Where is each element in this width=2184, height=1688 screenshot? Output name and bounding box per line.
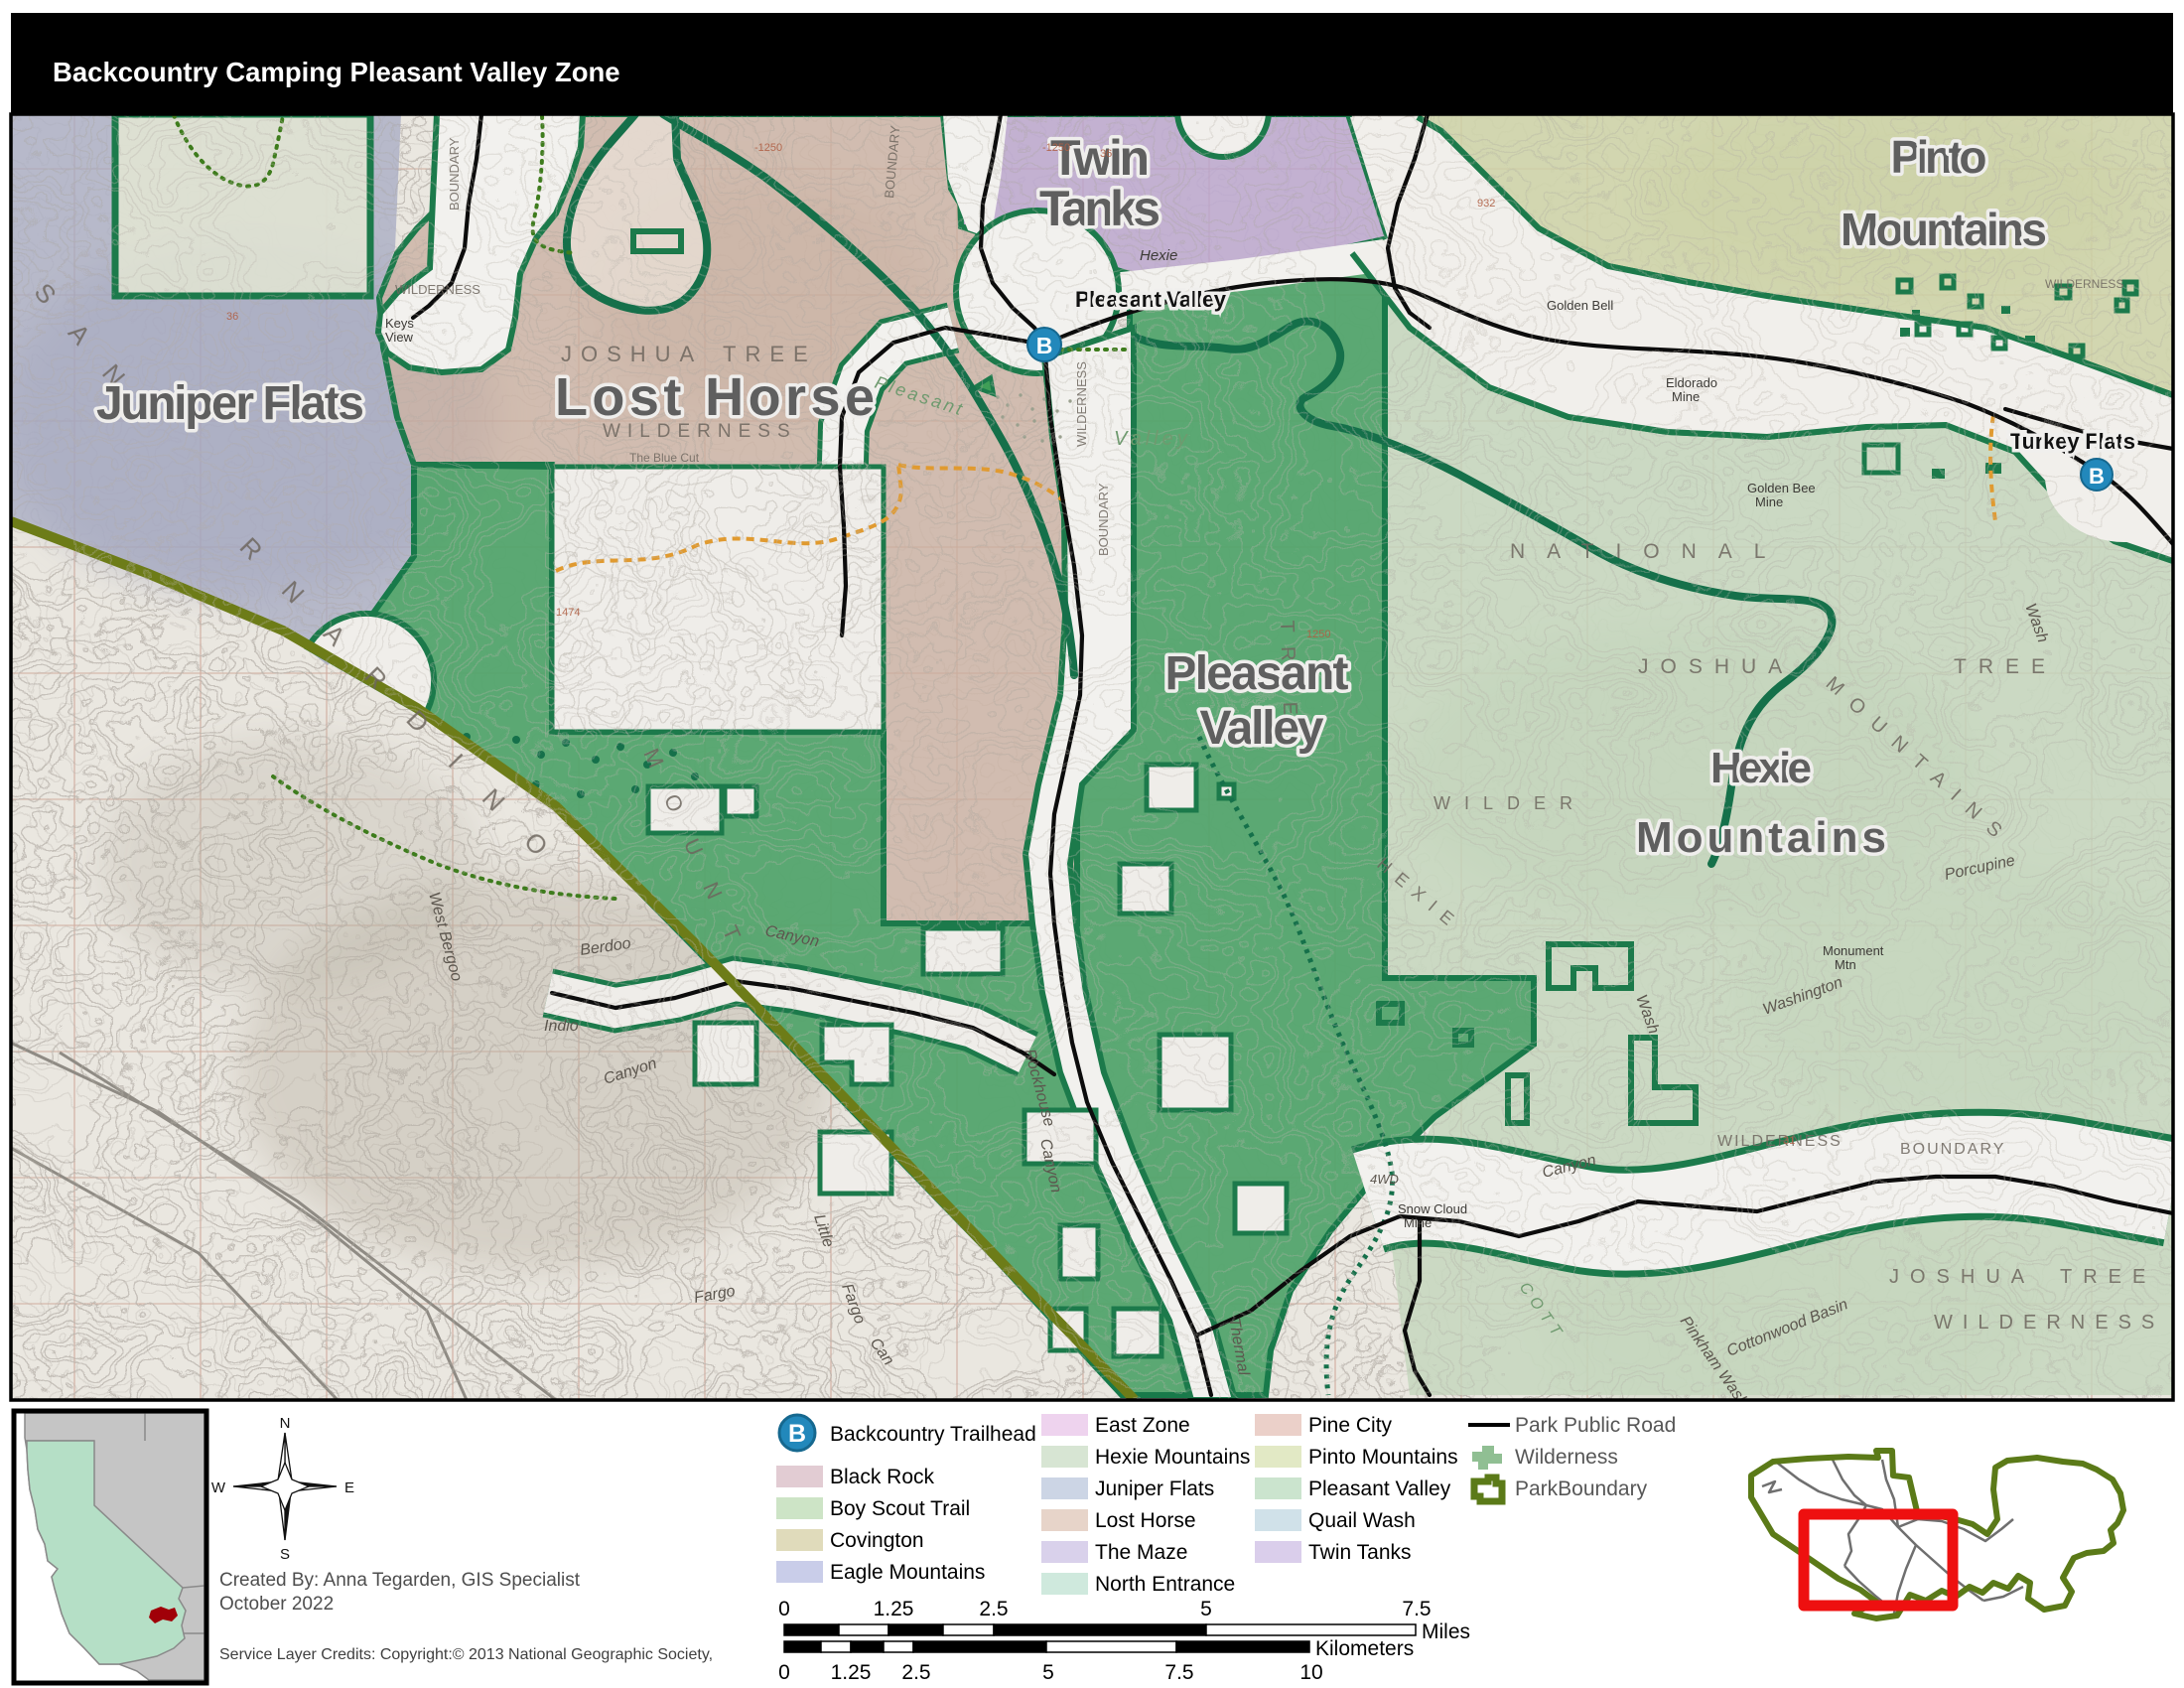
- svg-text:S: S: [280, 1546, 290, 1563]
- svg-text:October 2022: October 2022: [219, 1594, 334, 1615]
- svg-text:B: B: [1036, 333, 1053, 358]
- svg-text:Monument: Monument: [1823, 943, 1884, 958]
- svg-text:Created By: Anna Tegarden, GIS: Created By: Anna Tegarden, GIS Specialis…: [219, 1570, 581, 1591]
- svg-text:Backcountry Trailhead: Backcountry Trailhead: [830, 1423, 1036, 1446]
- svg-text:31: 31: [1783, 1135, 1795, 1147]
- svg-text:1250: 1250: [1306, 629, 1330, 640]
- svg-text:Hexie Mountains: Hexie Mountains: [1095, 1446, 1250, 1469]
- svg-text:5: 5: [1042, 1661, 1054, 1684]
- svg-text:WILDER: WILDER: [1433, 793, 1586, 813]
- svg-text:Indio: Indio: [544, 1018, 579, 1035]
- svg-text:932: 932: [1477, 198, 1495, 210]
- svg-text:WILDERNESS: WILDERNESS: [1074, 361, 1089, 447]
- svg-text:-1250: -1250: [754, 142, 782, 154]
- svg-text:Boy Scout Trail: Boy Scout Trail: [830, 1497, 970, 1520]
- svg-text:Miles: Miles: [1422, 1620, 1470, 1643]
- svg-text:Pleasant Valley: Pleasant Valley: [1075, 287, 1227, 312]
- svg-text:WILDERNESS: WILDERNESS: [395, 282, 480, 297]
- svg-text:Eldorado: Eldorado: [1666, 375, 1717, 390]
- svg-text:TREE: TREE: [1954, 655, 2057, 678]
- svg-text:36: 36: [226, 311, 238, 323]
- svg-text:Tanks: Tanks: [1039, 181, 1160, 236]
- svg-text:Juniper Flats: Juniper Flats: [1095, 1477, 1214, 1500]
- svg-text:Hexie: Hexie: [1140, 247, 1177, 264]
- svg-text:7.5: 7.5: [1164, 1661, 1193, 1684]
- svg-text:10: 10: [1299, 1661, 1322, 1684]
- svg-text:JOSHUA: JOSHUA: [1638, 655, 1794, 678]
- svg-text:-1250: -1250: [1042, 142, 1070, 154]
- svg-text:The Blue Cut: The Blue Cut: [629, 451, 700, 465]
- svg-text:Pinto Mountains: Pinto Mountains: [1308, 1446, 1458, 1469]
- svg-text:Golden Bell: Golden Bell: [1547, 298, 1613, 313]
- svg-text:2.5: 2.5: [979, 1598, 1008, 1620]
- svg-text:Twin Tanks: Twin Tanks: [1308, 1541, 1412, 1564]
- svg-text:N: N: [280, 1415, 291, 1432]
- svg-text:Mine: Mine: [1672, 389, 1700, 404]
- svg-text:Lost Horse: Lost Horse: [1095, 1509, 1196, 1532]
- svg-text:Kilometers: Kilometers: [1315, 1637, 1414, 1660]
- svg-text:North Entrance: North Entrance: [1095, 1573, 1235, 1596]
- svg-text:Eagle Mountains: Eagle Mountains: [830, 1561, 985, 1584]
- svg-text:4WD: 4WD: [1370, 1172, 1399, 1187]
- svg-text:Pine City: Pine City: [1308, 1414, 1393, 1437]
- svg-text:Mountains: Mountains: [1841, 204, 2047, 255]
- svg-text:0: 0: [778, 1661, 790, 1684]
- svg-text:The Maze: The Maze: [1095, 1541, 1187, 1564]
- svg-text:5: 5: [1200, 1598, 1212, 1620]
- svg-text:WILDERNESS: WILDERNESS: [2045, 277, 2123, 291]
- svg-text:East Zone: East Zone: [1095, 1414, 1190, 1437]
- svg-text:Pleasant: Pleasant: [1165, 647, 1349, 700]
- svg-text:Hexie: Hexie: [1710, 744, 1812, 792]
- svg-text:Wilderness: Wilderness: [1515, 1446, 1618, 1469]
- svg-text:Pinto: Pinto: [1891, 131, 1987, 183]
- svg-text:Mtn: Mtn: [1835, 957, 1856, 972]
- svg-text:Snow Cloud: Snow Cloud: [1398, 1201, 1467, 1216]
- svg-text:TREE: TREE: [723, 342, 817, 366]
- svg-text:WILDERNESS: WILDERNESS: [1717, 1133, 1843, 1150]
- svg-text:Keys: Keys: [385, 316, 414, 331]
- svg-text:Valley: Valley: [1200, 702, 1324, 755]
- svg-text:Pleasant Valley: Pleasant Valley: [1308, 1477, 1451, 1500]
- svg-text:Backcountry Camping Pleasant V: Backcountry Camping Pleasant Valley Zone: [53, 57, 620, 87]
- svg-text:TREE: TREE: [2060, 1266, 2156, 1288]
- svg-text:B: B: [2089, 464, 2105, 489]
- svg-text:BOUNDARY: BOUNDARY: [1900, 1141, 2005, 1158]
- svg-text:Black Rock: Black Rock: [830, 1466, 935, 1488]
- svg-text:Mine: Mine: [1404, 1215, 1432, 1230]
- svg-text:W: W: [211, 1479, 226, 1496]
- svg-text:1.25: 1.25: [831, 1661, 872, 1684]
- svg-text:2.5: 2.5: [901, 1661, 930, 1684]
- svg-text:View: View: [385, 330, 414, 345]
- svg-text:7.5: 7.5: [1402, 1598, 1431, 1620]
- svg-text:Park Public Road: Park Public Road: [1515, 1414, 1676, 1437]
- svg-text:Juniper Flats: Juniper Flats: [96, 377, 364, 430]
- svg-text:WILDERNESS: WILDERNESS: [1934, 1312, 2164, 1334]
- svg-text:Service Layer Credits: Copyrig: Service Layer Credits: Copyright:© 2013 …: [219, 1646, 713, 1663]
- svg-text:Mine: Mine: [1755, 494, 1783, 509]
- svg-text:Quail Wash: Quail Wash: [1308, 1509, 1416, 1532]
- svg-text:Golden Bee: Golden Bee: [1747, 481, 1816, 495]
- svg-text:1.25: 1.25: [874, 1598, 914, 1620]
- svg-text:ParkBoundary: ParkBoundary: [1515, 1477, 1648, 1500]
- svg-text:B: B: [788, 1420, 806, 1448]
- svg-text:JOSHUA: JOSHUA: [561, 342, 703, 366]
- svg-text:Lost Horse: Lost Horse: [555, 367, 875, 427]
- svg-text:36: 36: [1100, 148, 1112, 160]
- svg-text:1474: 1474: [556, 607, 580, 619]
- svg-text:NATIONAL: NATIONAL: [1510, 540, 1787, 563]
- svg-text:0: 0: [778, 1598, 790, 1620]
- svg-text:Turkey Flats: Turkey Flats: [2010, 429, 2135, 454]
- svg-text:BOUNDARY: BOUNDARY: [1096, 483, 1111, 556]
- svg-text:E: E: [344, 1479, 354, 1496]
- svg-text:BOUNDARY: BOUNDARY: [447, 137, 462, 211]
- svg-text:Valley: Valley: [1114, 428, 1191, 450]
- svg-text:JOSHUA: JOSHUA: [1889, 1266, 2035, 1288]
- svg-text:Covington: Covington: [830, 1529, 924, 1552]
